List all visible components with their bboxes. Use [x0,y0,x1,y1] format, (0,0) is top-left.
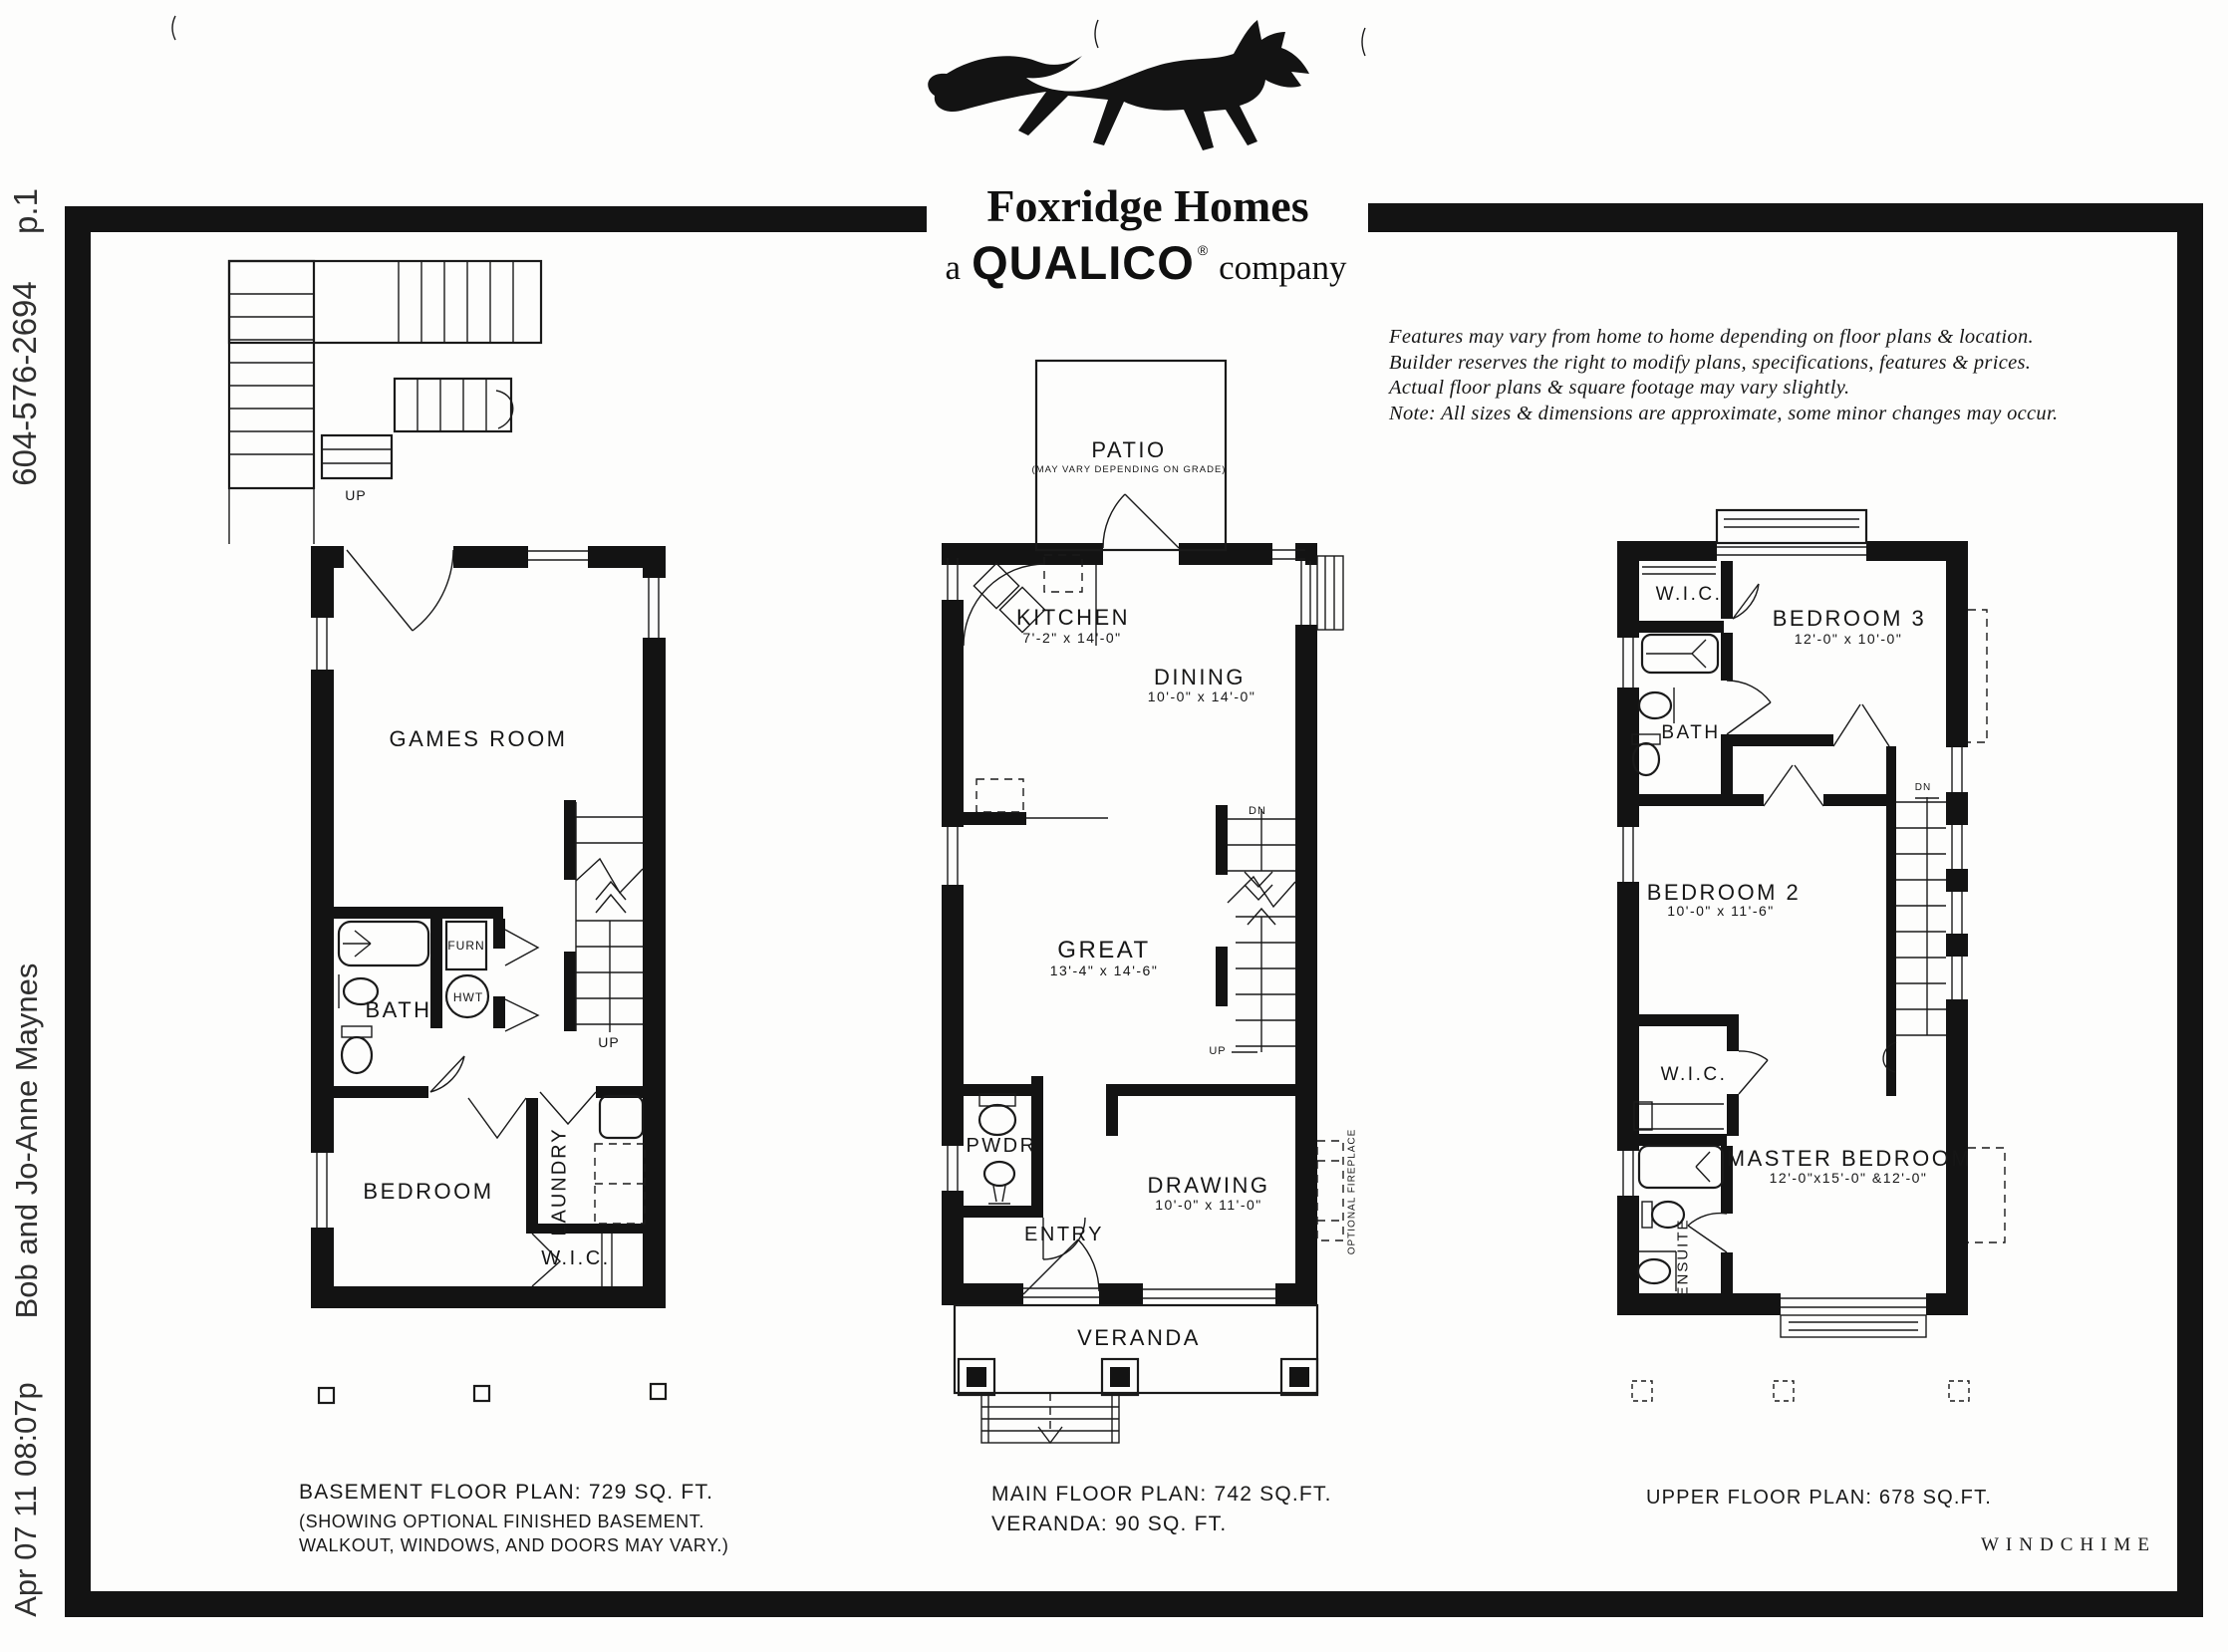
room-label-master-bedroom: MASTER BEDROOM [1727,1146,1972,1172]
room-label-bath: BATH [365,997,431,1023]
room-dim-master-bedroom: 12'-0"x15'-0" &12'-0" [1770,1170,1928,1186]
basement-stairs-up [576,802,643,1032]
basement-caption-line3: WALKOUT, WINDOWS, AND DOORS MAY VARY.) [299,1535,729,1556]
upper-caption: UPPER FLOOR PLAN: 678 SQ.FT. [1646,1487,1992,1510]
room-label-great: GREAT [1057,937,1150,964]
stair-direction-dn: DN [1249,805,1266,817]
basement-caption-line1: BASEMENT FLOOR PLAN: 729 SQ. FT. [299,1481,713,1505]
disclaimer-line: Note: All sizes & dimensions are approxi… [1389,402,2058,427]
veranda-steps [981,1393,1119,1443]
disclaimer-line: Builder reserves the right to modify pla… [1389,351,2058,377]
ensuite-sink [1638,1251,1676,1291]
room-dim-bedroom2: 10'-0" x 11'-6" [1667,903,1775,919]
stair-direction-up: UP [1209,1045,1226,1057]
room-dim-kitchen: 7'-2" x 14'-0" [1022,630,1121,646]
basement-stairs-top [229,261,541,544]
main-caption-line1: MAIN FLOOR PLAN: 742 SQ.FT. [991,1483,1332,1507]
fax-sender-name: Bob and Jo-Anne Maynes [9,964,45,1319]
room-label-bedroom: BEDROOM [363,1179,493,1205]
room-label-games-room: GAMES ROOM [389,726,567,752]
upper-bath-sink [1639,688,1674,723]
dining-bay-window [1317,556,1343,630]
fax-phone-number: 604-576-2694 [6,281,44,486]
room-label-patio: PATIO [1091,437,1166,463]
room-dim-dining: 10'-0" x 14'-0" [1148,688,1256,704]
tagline-brand: QUALICO [972,235,1195,290]
basement-bathtub [339,922,428,965]
fax-page: p.1 604-576-2694 Bob and Jo-Anne Maynes … [0,0,2228,1652]
basement-footing-markers [319,1384,666,1403]
optional-fireplace-outline [1317,1141,1343,1240]
basement-caption-line2: (SHOWING OPTIONAL FINISHED BASEMENT. [299,1512,704,1532]
room-dim-bedroom3: 12'-0" x 10'-0" [1795,631,1903,647]
master-bay-window [1781,1298,1926,1337]
room-label-wic: W.I.C. [1661,1064,1728,1086]
laundry-fixtures [595,1096,645,1224]
company-tagline: a QUALICO ® company [946,235,1347,290]
basement-toilet [342,1026,372,1073]
kitchen-counter [964,555,1108,818]
tagline-prefix: a [946,248,962,288]
disclaimer-line: Actual floor plans & square footage may … [1389,376,2058,402]
room-label-drawing: DRAWING [1147,1173,1269,1199]
upper-bathtub [1642,635,1718,673]
room-dim-great: 13'-4" x 14'-6" [1050,963,1159,978]
room-label-ensuite: ENSUITE [1675,1218,1692,1296]
label-hot-water-tank: HWT [453,990,483,1004]
fax-page-number: p.1 [7,188,45,234]
fax-datetime: Apr 07 11 08:07p [8,1382,44,1617]
upper-roof-markers [1632,1381,1969,1401]
registered-mark-icon: ® [1198,242,1208,258]
ensuite-bathtub [1639,1146,1723,1188]
patio-note: (MAY VARY DEPENDING ON GRADE) [1032,464,1227,475]
room-label-bedroom3: BEDROOM 3 [1773,606,1927,632]
room-label-veranda: VERANDA [1077,1325,1201,1351]
fox-logo [928,20,1309,150]
label-furnace: FURN [447,939,484,953]
disclaimer-line: Features may vary from home to home depe… [1389,325,2058,351]
tagline-suffix: company [1219,248,1346,288]
stair-direction-dn: DN [1915,782,1931,793]
basement-plan [229,261,666,1403]
main-caption-line2: VERANDA: 90 SQ. FT. [991,1513,1227,1536]
room-label-wic: W.I.C. [541,1247,610,1270]
room-label-pwdr: PWDR [966,1135,1036,1158]
room-dim-drawing: 10'-0" x 11'-0" [1155,1197,1262,1213]
main-floor-plan [942,361,1343,1443]
room-label-entry: ENTRY [1024,1224,1104,1246]
room-label-dining: DINING [1154,665,1246,690]
label-optional-fireplace: OPTIONAL FIREPLACE [1347,1129,1358,1255]
main-stairs [1228,809,1295,1052]
stair-direction-up: UP [345,487,366,503]
room-label-kitchen: KITCHEN [1016,605,1130,631]
scan-artifact-marks [172,16,1365,56]
room-label-bath: BATH [1661,722,1720,744]
stair-direction-up: UP [598,1034,619,1050]
bedroom3-bay-window [1717,510,1866,555]
disclaimer-text: Features may vary from home to home depe… [1389,325,2058,426]
company-name: Foxridge Homes [986,179,1308,232]
room-label-laundry: LAUNDRY [549,1127,572,1236]
model-name: WINDCHIME [1981,1534,2156,1556]
room-label-wic: W.I.C. [1656,584,1723,606]
